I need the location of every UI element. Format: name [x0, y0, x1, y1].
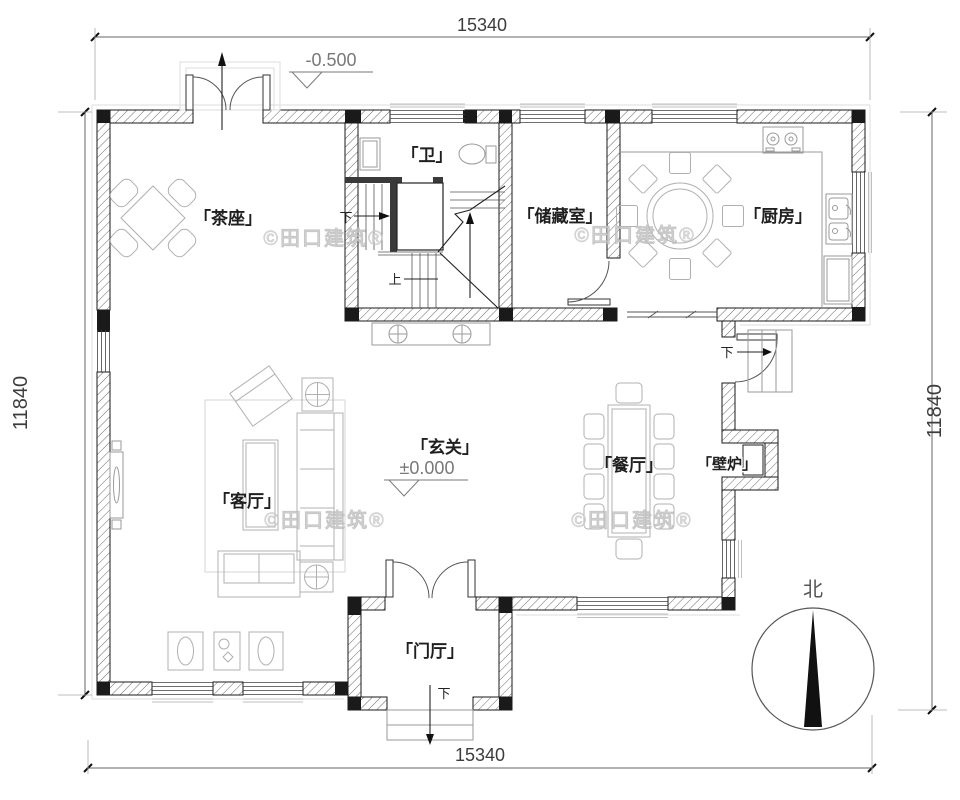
sink-icon: [360, 138, 380, 170]
room-label-living: 「客厅」: [213, 491, 281, 511]
dim-left: 11840: [10, 376, 32, 430]
windows: [98, 104, 872, 702]
elev-main-value: ±0.000: [400, 458, 455, 478]
foyer-entry-steps: 下: [387, 685, 473, 745]
room-label-dining: 「餐厅」: [595, 455, 663, 475]
side-exit-down-label: 下: [720, 345, 733, 360]
window-kitchen-right: [853, 172, 865, 253]
window-bath-top: [390, 111, 465, 123]
side-exit-door: [735, 334, 777, 382]
window-dining-right: [723, 540, 735, 578]
elev-entry-value: -0.500: [305, 50, 356, 70]
window-living-bottom-1: [152, 683, 213, 695]
north-indicator: 北: [752, 578, 874, 730]
room-label-fireplace: 「壁炉」: [697, 455, 757, 473]
stair-down-label: 下: [339, 210, 352, 225]
window-left-wall: [98, 330, 110, 372]
main-elevation: ±0.000: [384, 458, 468, 496]
armchair: [230, 366, 292, 426]
lounge-chair-1: [168, 632, 203, 670]
watermark-1: ©田口建筑®: [263, 226, 384, 250]
room-label-tea: 「茶座」: [194, 208, 262, 228]
window-dining-bottom: [577, 598, 668, 610]
floor-plan-drawing: 15340 15340 11840 11840: [0, 0, 960, 800]
loveseat: [218, 551, 300, 597]
dim-top: 15340: [457, 15, 507, 35]
planter-strip: [372, 323, 490, 345]
lounge-chair-2: [249, 632, 283, 670]
storage-door: [568, 261, 610, 305]
floor-plan-canvas: 15340 15340 11840 11840: [0, 0, 960, 800]
dim-right: 11840: [924, 384, 946, 438]
room-label-bath: 「卫」: [402, 145, 453, 165]
room-label-hall: 「玄关」: [411, 437, 479, 457]
tv-cabinet: [110, 441, 123, 529]
watermark-2: ©田口建筑®: [574, 223, 695, 247]
room-label-foyer: 「门厅」: [396, 641, 464, 661]
side-table-2: [300, 562, 333, 592]
stove-icon: [763, 127, 803, 153]
window-kitchen-top: [652, 111, 737, 123]
entry-elevation: -0.500: [289, 50, 373, 88]
fridge-icon: [824, 256, 852, 304]
toilet-icon: [459, 144, 496, 164]
room-label-kitchen: 「厨房」: [744, 206, 812, 226]
side-table-1: [302, 378, 333, 411]
tea-room-furniture: [107, 176, 198, 259]
room-label-storage: 「储藏室」: [518, 206, 603, 226]
entry-down-label: 下: [437, 686, 450, 701]
kitchen-fixtures: [617, 127, 853, 308]
watermark-4: ©田口建筑®: [571, 508, 692, 532]
dimension-annotations: 15340 15340 11840 11840: [10, 15, 947, 774]
north-needle-icon: [804, 610, 822, 727]
sofa-three-seat: [297, 413, 343, 560]
stair-up-label: 上: [388, 272, 401, 287]
kitchen-sliding-opening: [627, 311, 717, 318]
lounge-table: [214, 632, 240, 670]
north-label: 北: [803, 578, 823, 601]
window-living-bottom-2: [243, 683, 303, 695]
dim-bottom: 15340: [455, 745, 505, 765]
kitchen-table: [617, 153, 744, 280]
kitchen-sink-icon: [826, 194, 852, 244]
window-storage-top: [520, 111, 585, 123]
watermark-3: ©田口建筑®: [264, 508, 385, 532]
foyer-double-door: [386, 560, 475, 598]
